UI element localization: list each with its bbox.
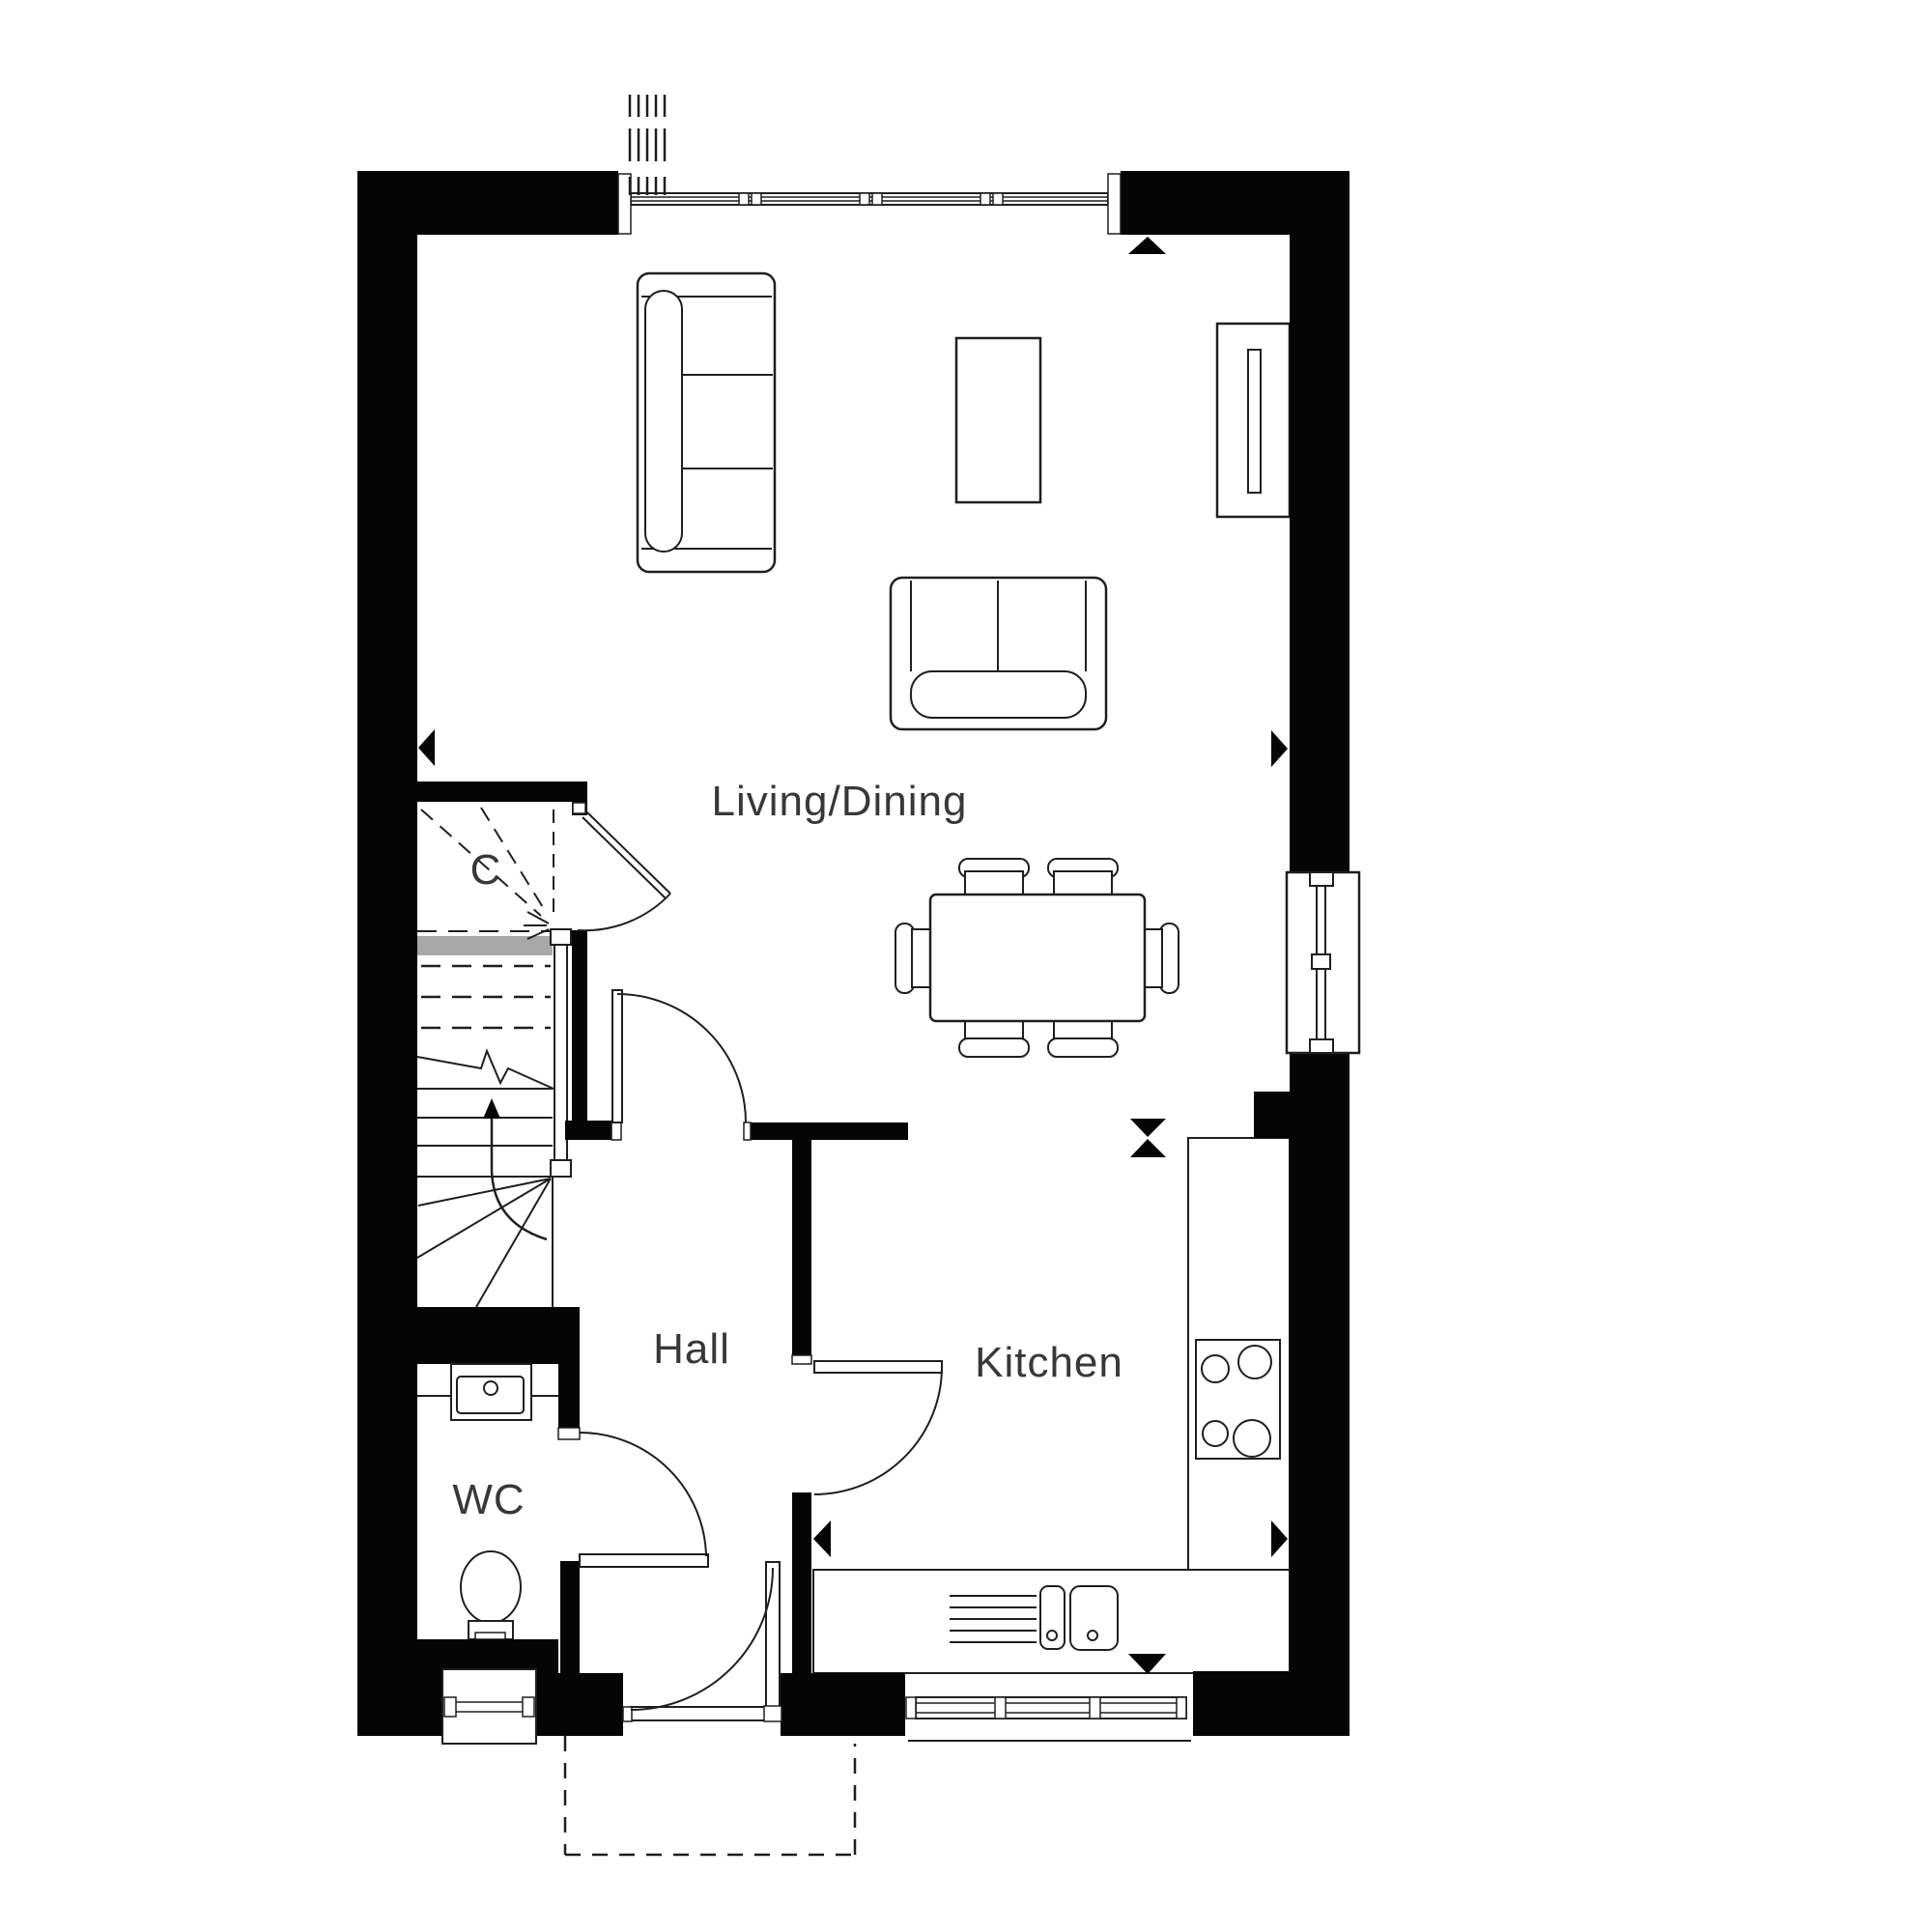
window-kitchen-mullion [995,1697,1006,1719]
cupboard-door-leaf [587,812,670,894]
toilet-cistern-lid [475,1633,505,1639]
stair-newel-post [551,1160,571,1177]
wall-hall-kitchen-upper [792,1140,811,1355]
window-right-block [1312,954,1330,969]
window-kitchen-band [916,1697,1186,1719]
stair-arrow-head [483,1098,500,1119]
dining-chair-back [1048,1038,1118,1057]
window-right-block [1310,872,1333,886]
wall-hall-stub [565,1121,611,1140]
dining-chair-seat [965,871,1023,896]
window-top-mullion [860,193,869,205]
stair-winder [417,1179,551,1258]
window-top-mullion [980,193,990,205]
hob-ring [1203,1421,1228,1446]
stair-break-line [417,1051,554,1089]
marker-hourglass-top [1130,1119,1166,1137]
cupboard-door-swing [578,894,670,930]
marker-triangle-left [418,729,435,766]
dining-table [930,895,1145,1021]
floor-plan-canvas: Living/DiningHallKitchenWCC [0,0,1932,1932]
marker-triangle-right [1271,730,1288,767]
stair-landing-tread [417,936,553,955]
hall-door-jamb [744,1122,751,1140]
tv-screen [1248,350,1261,493]
basin-tap [484,1381,497,1395]
floor-plan-page: Living/DiningHallKitchenWCC [0,0,1932,1932]
coffee-table [956,338,1040,502]
hall-door-jamb [611,1122,621,1140]
window-kitchen-cap [906,1697,916,1719]
hall-door-swing [617,994,746,1122]
wall-hall-kitchen-lower [792,1492,811,1673]
stair-winder [476,1179,551,1307]
dining-chair-back [959,1038,1029,1057]
room-label-living-dining: Living/Dining [712,778,968,825]
window-top-mullion [739,193,749,205]
marker-hourglass-bottom [1130,1139,1166,1157]
sofa-small-back [911,671,1086,718]
kitchen-door-swing [814,1367,942,1494]
wc-door-jamb [558,1428,580,1439]
wall-hall-dining [751,1122,908,1140]
wall-right-pier [1254,1092,1290,1138]
hall-door-leaf [612,990,622,1122]
wall-right-lower [1290,1053,1350,1736]
window-right-block [1310,1039,1333,1053]
front-door-jamb [623,1707,632,1721]
wc-door-swing [580,1433,706,1556]
wall-bottom-middle [781,1673,905,1736]
window-top-mullion [872,193,882,205]
front-door-swing [631,1568,773,1710]
sofa-large-back [645,291,682,552]
wall-wc-top [415,1307,580,1364]
wall-stair-top [417,781,587,802]
marker-triangle-left-kitchen [813,1520,831,1557]
stair-newel-post [551,929,571,945]
room-label-wc: WC [452,1476,525,1523]
room-label-hall: Hall [653,1325,730,1373]
window-kitchen-cap [1177,1697,1186,1719]
kitchen-door-leaf [814,1361,942,1373]
window-top-mullion [752,193,761,205]
cupboard-label: C [470,846,502,894]
wall-wc-right [558,1364,580,1428]
stair-up-arrow [492,1111,547,1239]
window-top-mullion [993,193,1003,205]
wall-top-left [357,171,618,235]
sink-drain [1047,1631,1057,1640]
stair-winder [418,1179,551,1206]
window-kitchen-mullion [1090,1697,1100,1719]
toilet-bowl [461,1551,521,1623]
window-top-jamb [1108,174,1121,234]
window-wc-cap [444,1697,456,1717]
wall-stair-hall [572,930,587,1121]
hob-ring [1202,1355,1229,1382]
dining-chair-seat [1054,871,1112,896]
wall-wc-door-lower [560,1561,580,1673]
wall-bottom-right [1193,1671,1350,1736]
wc-door-leaf [580,1554,708,1567]
window-wc-cap [523,1697,534,1717]
marker-triangle-up [1128,237,1166,254]
front-door-jamb [764,1706,781,1721]
sink-drain [1088,1631,1097,1640]
room-label-kitchen: Kitchen [975,1339,1123,1386]
wall-left [357,171,417,1736]
kitchen-door-jamb [792,1355,811,1364]
hob-ring [1238,1346,1271,1378]
hob-ring [1234,1420,1270,1457]
cupboard-door-leaf [582,817,666,898]
cupboard-door-jamb [573,803,585,813]
wall-right-upper [1290,171,1350,872]
